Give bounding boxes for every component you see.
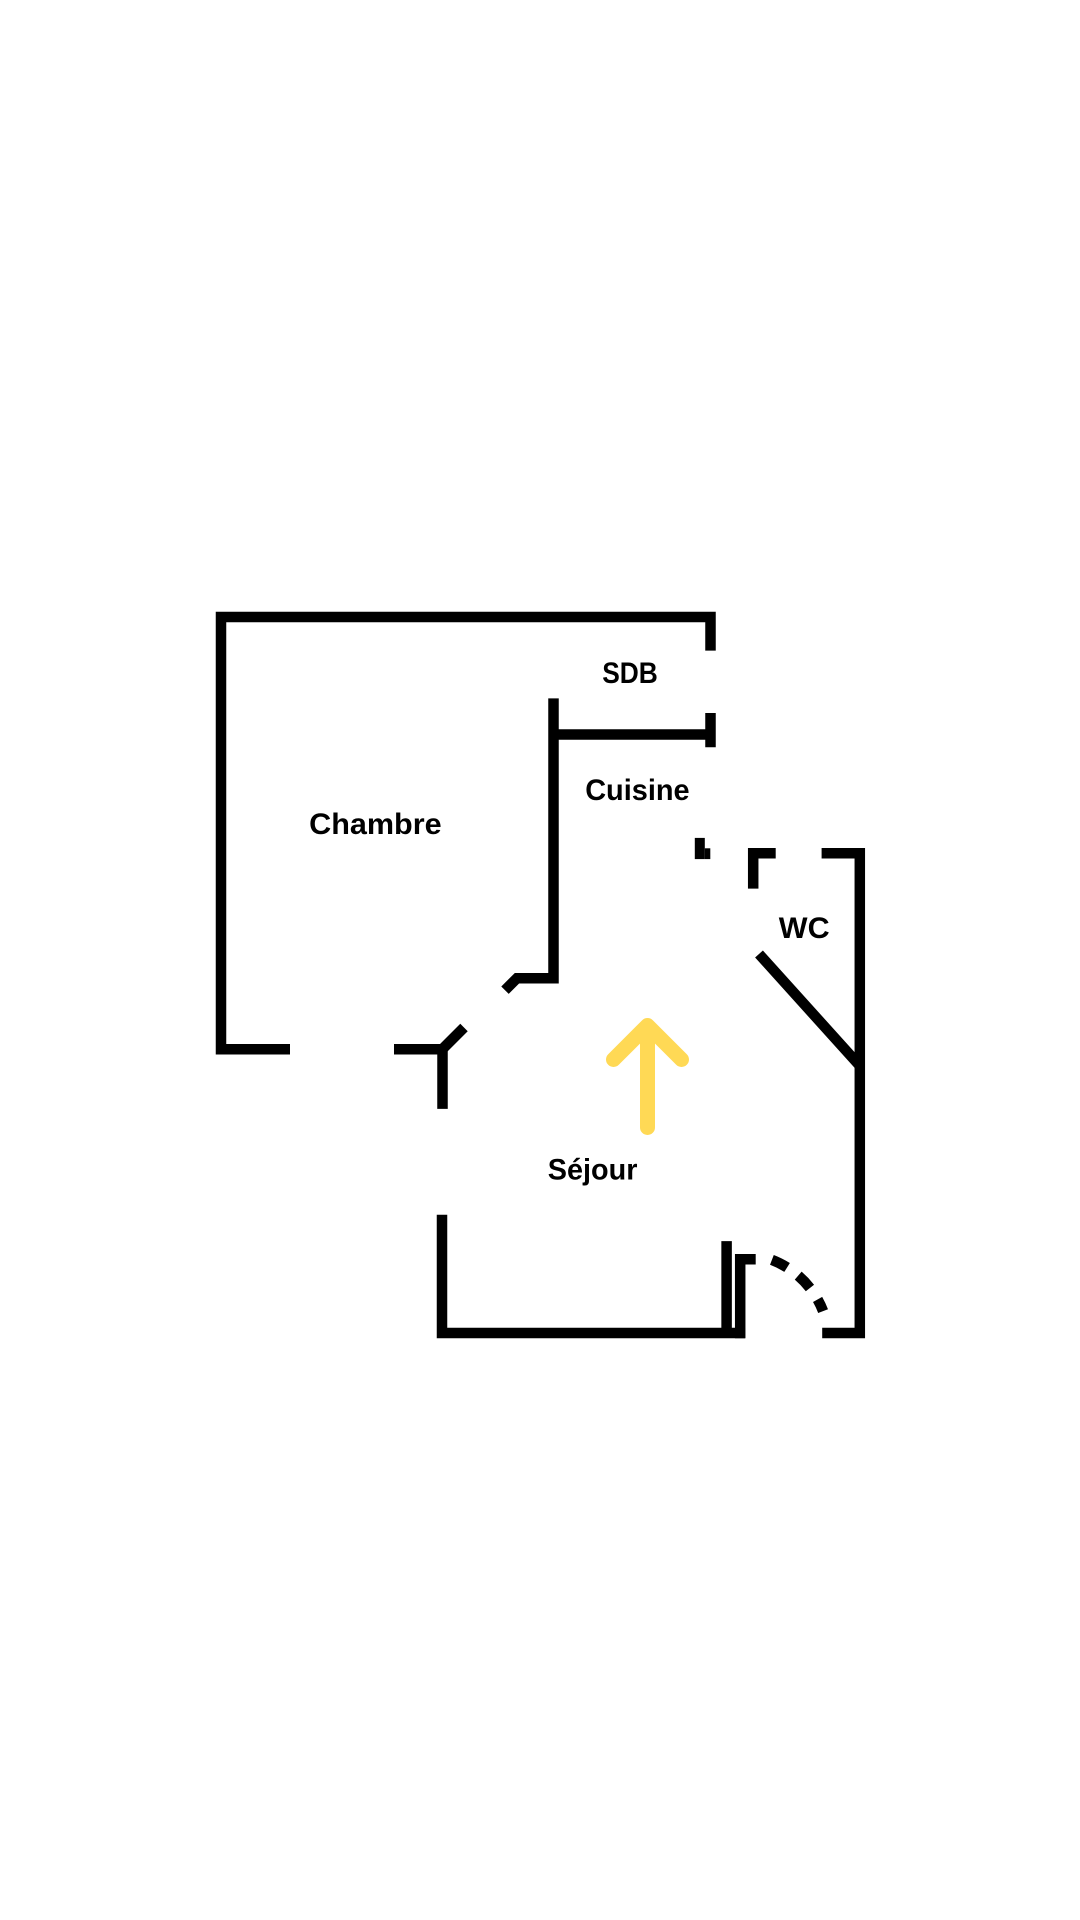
svg-text:SDB: SDB bbox=[602, 657, 658, 690]
svg-text:WC: WC bbox=[779, 912, 830, 945]
svg-text:Séjour: Séjour bbox=[548, 1153, 638, 1186]
svg-text:Cuisine: Cuisine bbox=[585, 774, 689, 807]
svg-text:Chambre: Chambre bbox=[309, 808, 442, 841]
